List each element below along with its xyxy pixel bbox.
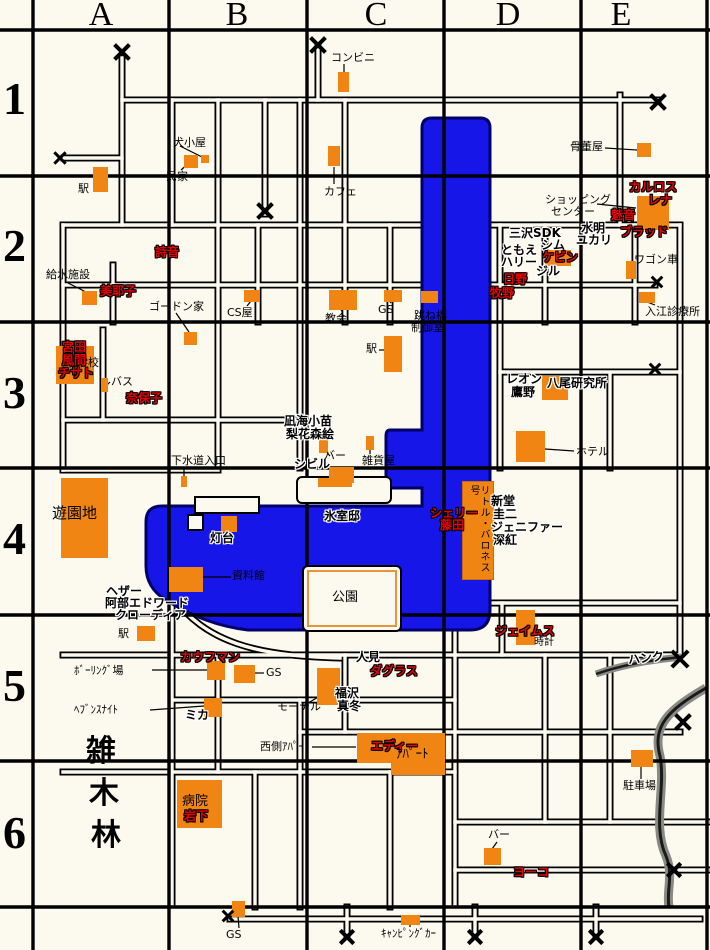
character-name-label: 詩音 — [155, 246, 179, 259]
column-header-B: B — [226, 0, 249, 34]
character-name-label: ケビン — [542, 251, 578, 264]
character-name-label: 真冬 — [337, 700, 361, 713]
row-header-6: 6 — [3, 810, 26, 856]
drawbridge-control-building[interactable] — [421, 291, 438, 303]
place-label[interactable]: 犬小屋 — [173, 137, 206, 149]
water-facility-building[interactable] — [82, 291, 97, 305]
place-label[interactable]: バー — [324, 450, 346, 462]
place-label[interactable]: ゴードン家 — [149, 301, 204, 313]
row-header-4: 4 — [3, 516, 26, 562]
character-name-label: ハリー — [501, 256, 537, 269]
column-header-A: A — [89, 0, 114, 34]
place-label[interactable]: 八尾研究所 — [547, 377, 607, 390]
town-map: リトル・バロネス号コンビニ犬小屋民家駅カフェ骨董屋ショッピングセンターカルロスレ… — [0, 0, 710, 950]
irie-clinic-building[interactable] — [639, 292, 655, 303]
character-name-label: ヨーコ — [513, 866, 549, 879]
cs-shop-building[interactable] — [244, 290, 260, 302]
water-layer — [146, 118, 490, 630]
road-block-x-mark — [309, 36, 327, 54]
character-name-label: ダグラス — [370, 665, 418, 678]
place-label[interactable]: 駅 — [366, 343, 377, 355]
parking-lot-building[interactable] — [631, 750, 653, 767]
character-name-label: ユカリ — [576, 234, 612, 247]
place-label[interactable]: 遊園地 — [52, 506, 97, 522]
road-block-x-mark — [670, 649, 690, 669]
column-header-D: D — [496, 0, 521, 34]
character-name-label: 深紅 — [493, 534, 517, 547]
character-name-label: 鷹野 — [511, 386, 535, 399]
character-name-label: クローディア — [115, 609, 186, 622]
place-label[interactable]: ショッピング — [545, 194, 611, 206]
character-name-label: 岩下 — [184, 810, 208, 823]
dock-0 — [194, 496, 260, 514]
road-block-x-mark — [256, 202, 274, 220]
road-block-x-mark — [339, 929, 355, 945]
character-name-label: 奈保子 — [126, 392, 162, 405]
column-header-E: E — [611, 0, 632, 34]
place-label[interactable]: CS屋 — [227, 307, 253, 319]
character-name-label: 圭二 — [493, 508, 517, 521]
character-name-label: ブラッド — [620, 226, 668, 239]
row-header-3: 3 — [3, 370, 26, 416]
character-name-label: 梨花森絵 — [286, 428, 334, 441]
boat-name-label: リトル・バロネス号 — [468, 482, 488, 579]
bar-d6-building[interactable] — [484, 848, 501, 865]
place-label[interactable]: 駐車場 — [623, 780, 656, 792]
place-label[interactable]: ｱﾊﾟｰﾄ — [396, 748, 429, 762]
character-name-label: ジェイムス — [495, 625, 555, 638]
canal-and-lake — [146, 118, 490, 630]
place-label[interactable]: 雑貨屋 — [362, 455, 395, 467]
column-header-C: C — [365, 0, 388, 34]
dog-house-building[interactable] — [201, 155, 209, 163]
place-label[interactable]: 資料館 — [232, 570, 265, 582]
character-name-label: 宮田 — [62, 341, 86, 354]
character-name-label: 風間 — [62, 354, 86, 367]
lighthouse-building[interactable] — [221, 516, 237, 532]
road-block-x-mark — [649, 363, 661, 375]
character-name-label: ジェニファー — [491, 521, 563, 534]
row-header-1: 1 — [3, 76, 26, 122]
place-label[interactable]: 駅 — [118, 628, 129, 640]
station-a1-building[interactable] — [93, 167, 108, 192]
place-label[interactable]: 制御室 — [411, 322, 444, 334]
church-building[interactable] — [329, 290, 357, 310]
character-name-label: ミカ — [185, 709, 209, 722]
place-label[interactable]: 民家 — [166, 171, 188, 183]
character-name-label: 新堂 — [491, 495, 515, 508]
character-name-label: レオン — [506, 373, 542, 386]
character-name-label: カウフマン — [180, 651, 240, 664]
road-block-x-mark — [588, 929, 604, 945]
place-label[interactable]: ﾎﾞｰﾘﾝｸﾞ場 — [74, 665, 124, 677]
road-block-x-mark — [674, 713, 692, 731]
himuro-mansion-building[interactable] — [318, 478, 352, 487]
character-name-label: 人見 — [356, 651, 380, 664]
gas-station-b5-building[interactable] — [234, 665, 255, 683]
road-block-x-mark — [113, 43, 131, 61]
place-label[interactable]: 骨董屋 — [570, 141, 603, 153]
road-block-x-mark — [649, 93, 667, 111]
place-label[interactable]: 給水施設 — [46, 269, 90, 281]
place-label[interactable]: 入江診療所 — [645, 306, 700, 318]
place-label[interactable]: モーテル — [277, 701, 321, 713]
character-name-label: 凪海小苗 — [284, 415, 332, 428]
character-name-label: チサト — [58, 367, 94, 380]
place-label[interactable]: 雑 — [86, 736, 116, 768]
dock-1 — [187, 514, 204, 531]
convenience-store-building[interactable] — [338, 72, 349, 92]
place-label[interactable]: GS — [266, 667, 282, 679]
place-label[interactable]: コンビニ — [331, 52, 375, 64]
place-label[interactable]: ﾍﾌﾞﾝｽﾅｲﾄ — [74, 704, 118, 716]
place-label[interactable]: 氷室邸 — [324, 510, 360, 523]
road-block-x-mark — [666, 862, 682, 878]
character-name-label: 日野 — [503, 273, 527, 286]
character-name-label: レナ — [648, 194, 672, 207]
character-name-label: 福沢 — [335, 687, 359, 700]
place-label[interactable]: バー — [488, 829, 510, 841]
place-label[interactable]: 西側ｱﾊﾟｰﾄ — [260, 741, 310, 753]
place-label[interactable]: バス — [111, 376, 133, 388]
place-label[interactable]: GS — [378, 304, 394, 316]
sewer-entrance-building[interactable] — [181, 476, 187, 487]
row-header-5: 5 — [3, 663, 26, 709]
place-label[interactable]: センター — [551, 206, 595, 218]
character-name-label: 美耶子 — [100, 285, 136, 298]
little-baroness-boat[interactable]: リトル・バロネス号 — [462, 481, 494, 580]
place-label[interactable]: 灯台 — [210, 532, 234, 545]
general-store-building[interactable] — [366, 436, 374, 450]
place-label[interactable]: カフェ — [324, 186, 357, 198]
cafe-building[interactable] — [328, 146, 340, 166]
antique-shop-building[interactable] — [637, 143, 651, 157]
camper-van-building[interactable] — [401, 915, 420, 925]
museum-building[interactable] — [169, 567, 203, 592]
character-name-label: ジル — [536, 265, 560, 278]
place-label[interactable]: ホテル — [576, 446, 609, 458]
gordon-house-building[interactable] — [184, 332, 197, 345]
station-c3-building[interactable] — [384, 336, 402, 372]
character-name-label: カルロス — [629, 181, 677, 194]
place-label[interactable]: 木 — [89, 778, 119, 810]
road-block-x-mark — [651, 276, 663, 288]
place-label[interactable]: 時計 — [534, 638, 554, 649]
road-block-x-mark — [222, 910, 234, 922]
road-block-x-mark — [467, 929, 483, 945]
character-name-label: 牧野 — [490, 287, 514, 300]
gas-station-c2-building[interactable] — [384, 290, 402, 302]
place-label[interactable]: 林 — [91, 820, 121, 852]
private-house-building[interactable] — [184, 155, 198, 168]
place-label[interactable]: 駅 — [78, 183, 89, 195]
place-label[interactable]: 教会 — [325, 313, 347, 325]
character-name-label: 藤田 — [440, 519, 464, 532]
row-header-2: 2 — [3, 223, 26, 269]
place-label[interactable]: 公園 — [332, 591, 358, 605]
place-label[interactable]: 下水道入口 — [171, 455, 226, 467]
place-label[interactable]: ワゴン車 — [634, 254, 678, 266]
place-label[interactable]: GS — [226, 929, 242, 941]
road-block-x-mark — [54, 152, 67, 165]
place-label[interactable]: 病院 — [182, 795, 208, 809]
place-label[interactable]: 跳ね橋 — [414, 310, 447, 322]
station-a5-building[interactable] — [137, 626, 155, 641]
bus-stop-building[interactable] — [101, 378, 108, 392]
character-name-label: 魅音 — [611, 209, 635, 222]
hotel-building[interactable] — [516, 431, 545, 462]
place-label[interactable]: ｷｬﾝﾋﾟﾝｸﾞｶｰ — [381, 928, 436, 940]
